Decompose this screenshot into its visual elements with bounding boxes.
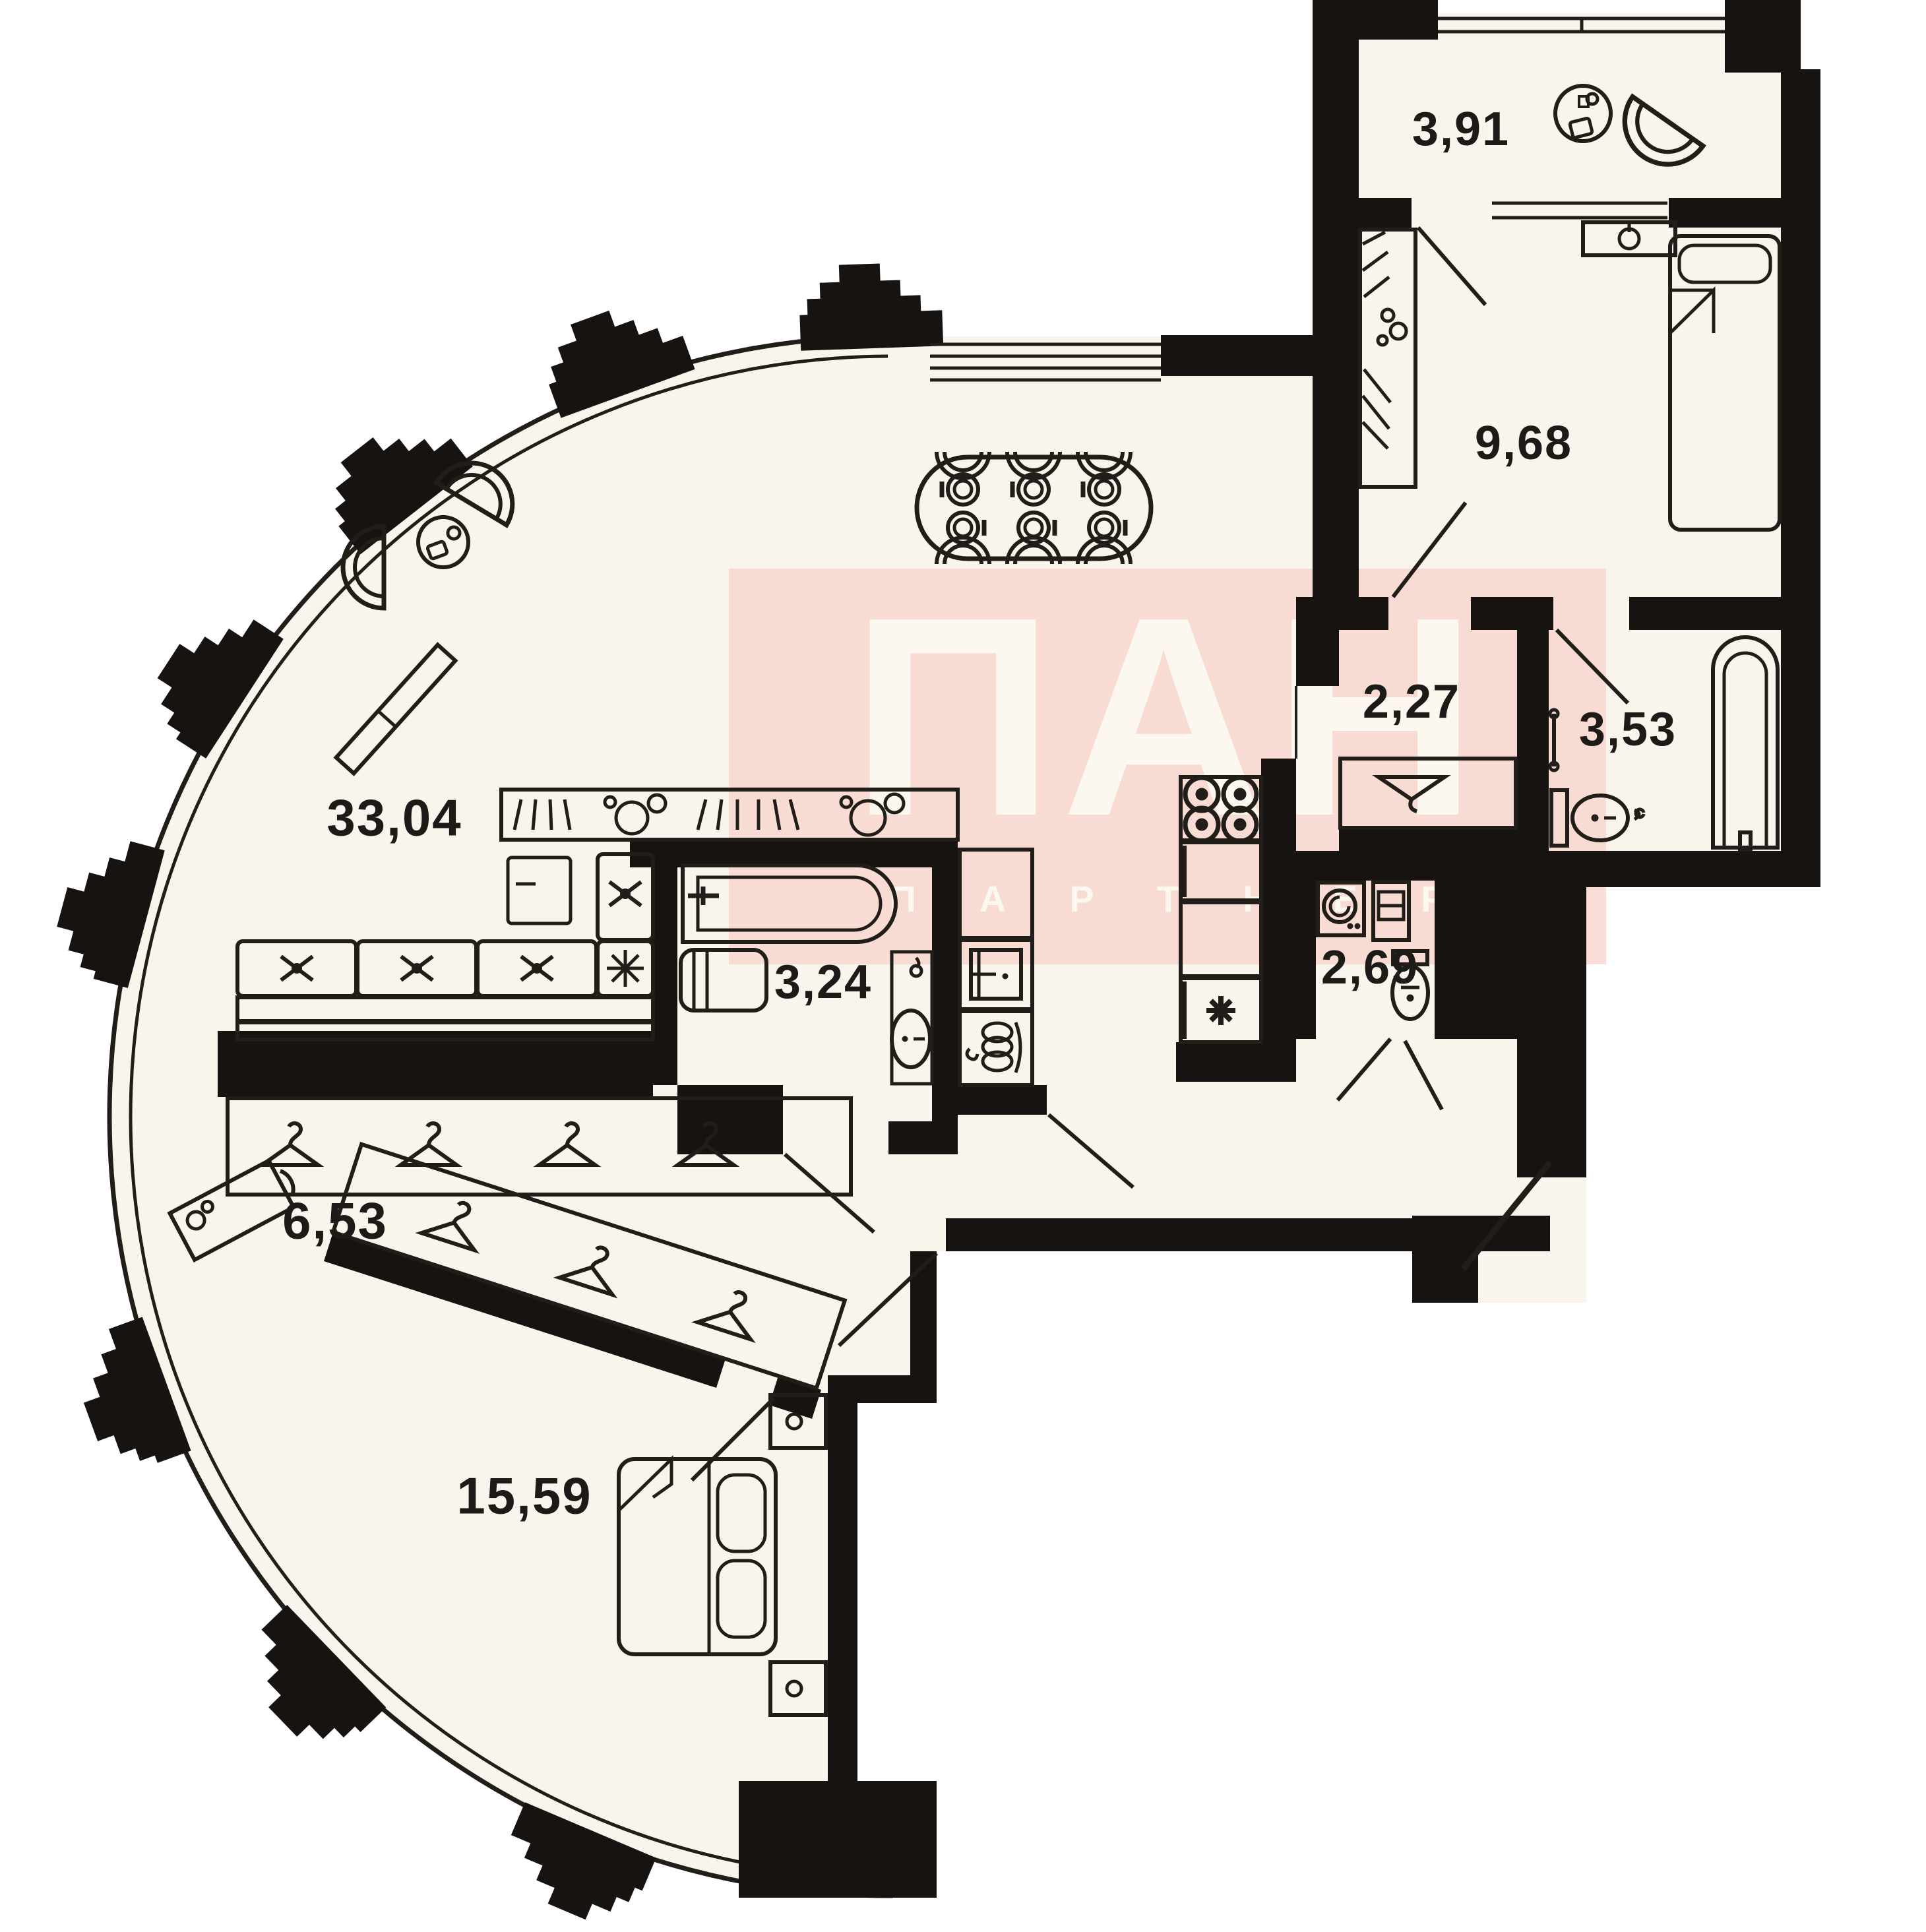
toilet-icon <box>892 1011 930 1067</box>
bedroom2-furniture <box>1360 222 1780 530</box>
floorplan-canvas: ПАН ПАРТНЕР <box>0 0 1926 1932</box>
blanket-fold <box>1670 290 1714 333</box>
pier-tooth-icon <box>226 1605 386 1766</box>
room-label-bedroom1: 15,59 <box>456 1466 592 1526</box>
wash-basin-tap-icon <box>911 958 921 976</box>
pillow-icon <box>718 1475 765 1551</box>
living-window-icon <box>930 344 1161 380</box>
toilet-icon <box>1551 790 1644 846</box>
laundry-closet-door-leaf-icon <box>1049 1115 1133 1187</box>
bathroom2-door-leaf-icon <box>1557 630 1628 703</box>
bed-icon <box>619 1459 776 1654</box>
sofa-icon <box>237 854 653 1040</box>
washing-machine-icon <box>1318 883 1364 935</box>
towel-rail-icon <box>1550 710 1558 770</box>
balcony-furniture <box>1555 86 1703 181</box>
kitchen-column <box>1181 777 1261 1042</box>
room-label-laundry: 2,27 <box>1363 675 1460 729</box>
sink-cabinet-icon <box>1373 882 1409 940</box>
room-label-wc: 2,69 <box>1321 941 1419 995</box>
utility-column <box>960 850 1032 1085</box>
pillow-icon <box>718 1561 765 1637</box>
washing-machine-icon <box>681 950 766 1011</box>
bathtub-icon <box>1713 637 1778 850</box>
boiler-icon <box>960 1011 1032 1085</box>
kitchen-counter-sink-icon <box>501 790 958 840</box>
laundry-sink-icon <box>1340 759 1516 828</box>
corridor-fixtures <box>1340 759 1516 828</box>
pier-tooth-icon <box>532 290 695 418</box>
dressing-door-leaf-icon <box>692 1398 774 1480</box>
room-label-dressing: 6,53 <box>282 1191 388 1251</box>
tv-console-icon <box>336 644 456 773</box>
pillow-icon <box>1679 245 1770 282</box>
kitchen-cabinet <box>1181 902 1261 976</box>
wc-door-leaf-icon <box>1338 1039 1390 1100</box>
room-label-bathroom2: 3,53 <box>1579 702 1677 757</box>
nightstand-icon <box>770 1662 826 1715</box>
cabinet-icon <box>508 857 571 923</box>
blanket-fold <box>619 1459 671 1511</box>
stove-icon <box>1181 777 1261 841</box>
balcony-window-icon <box>1438 18 1725 32</box>
pier-tooth-icon <box>492 1802 656 1932</box>
bed-icon <box>1670 236 1780 530</box>
washing-machine-icon <box>1555 86 1611 141</box>
wardrobe-icon <box>1360 230 1415 487</box>
bedroom2-door-leaf-icon <box>1393 503 1466 597</box>
bathtub-icon <box>683 865 896 942</box>
pier-tooth-icon <box>135 593 284 759</box>
plan-line-layer <box>0 0 1926 1932</box>
kitchen-cabinet <box>1181 842 1261 900</box>
room-label-livingroom: 33,04 <box>326 788 462 848</box>
balcony-door-leaf-icon <box>1418 228 1485 305</box>
coffee-table-icon <box>418 517 468 567</box>
balcony-bedroom-window-icon <box>1492 203 1667 218</box>
pier-tooth-icon <box>798 261 943 350</box>
pier-tooth-icon <box>63 1317 191 1480</box>
fridge-snowflake-icon <box>1181 978 1261 1042</box>
bedroom1-furniture <box>619 1395 826 1715</box>
room-label-balcony: 3,91 <box>1412 102 1510 156</box>
room-label-bathroom1: 3,24 <box>774 955 872 1009</box>
armchair-icon <box>1608 97 1703 181</box>
dining-table-icon <box>917 452 1151 564</box>
cabinet-icon <box>960 850 1032 938</box>
wc-door-leaf2-icon <box>1405 1041 1442 1109</box>
room-label-bedroom2: 9,68 <box>1475 416 1572 470</box>
vanity-sink-icon <box>1583 222 1675 255</box>
washer-front-icon <box>960 940 1032 1009</box>
